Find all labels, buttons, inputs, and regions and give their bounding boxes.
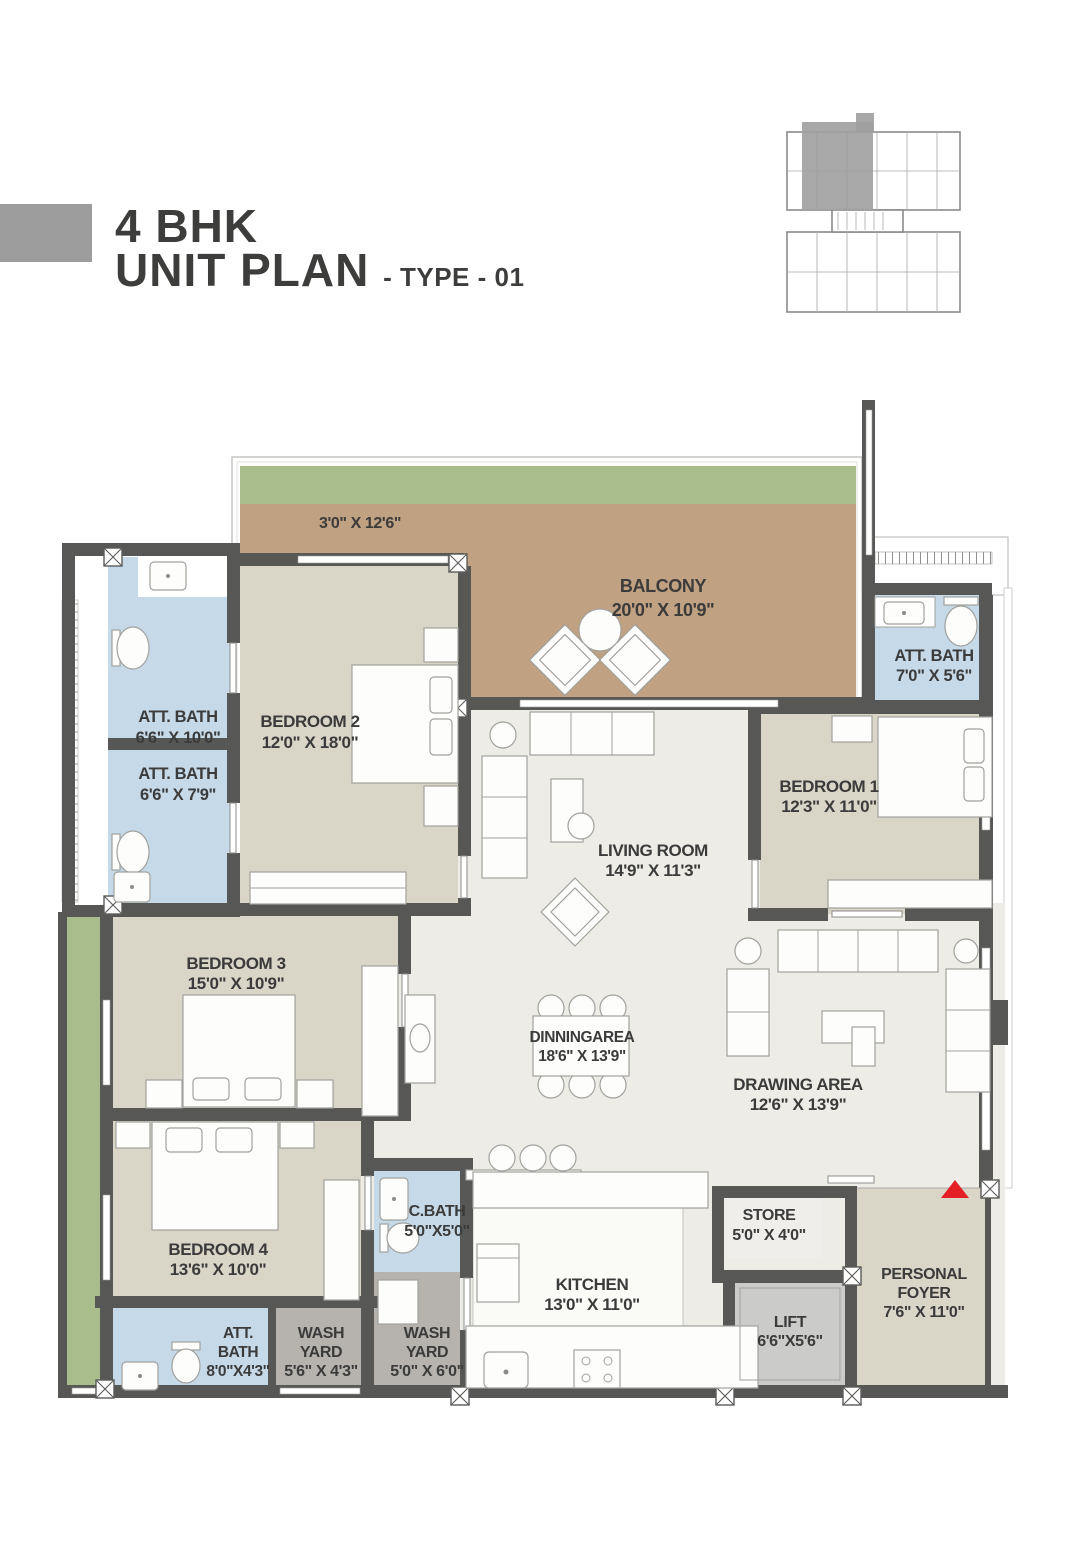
key-plan-highlight-tab [856,113,874,132]
basin [410,1024,430,1052]
toilet [117,831,149,873]
room-label-balcony-strip: 3'0" X 12'6" [319,515,401,532]
balcony-planter [240,466,856,504]
coffee-table-round [568,813,594,839]
kitchen-counter-top [473,1172,708,1208]
key-plan-core [832,210,903,232]
toilet [172,1349,200,1383]
room-label-kitchen: KITCHEN13'0" X 11'0" [544,1275,640,1314]
toilet [117,627,149,669]
pillow [430,719,452,755]
key-plan [787,113,960,312]
nightstand [424,628,458,662]
pillow [193,1078,229,1100]
wardrobe [362,966,398,1116]
room-label-drawing-area: DRAWING AREA12'6" X 13'9" [733,1075,863,1114]
pillow [964,729,984,763]
room-label-bedroom-1: BEDROOM 112'3" X 11'0" [779,777,878,816]
drawing-side-sofa [946,969,990,1092]
wardrobe [324,1180,359,1300]
right-ledge [1004,588,1012,1188]
room-label-bedroom-3: BEDROOM 315'0" X 10'9" [186,954,285,993]
drawing-table-stem [852,1027,875,1066]
side-planter [67,912,102,1390]
bar-stool [520,1145,546,1171]
nightstand [116,1122,150,1148]
living-sofa [530,712,654,755]
side-table [735,938,761,964]
room-label-bedroom-4: BEDROOM 413'6" X 10'0" [168,1240,268,1279]
deck-hatch-strip [875,552,992,564]
bar-stool [489,1145,515,1171]
key-plan-highlighted-unit [802,122,873,210]
side-table [490,722,516,748]
console-shelf [828,1176,874,1183]
nightstand [146,1080,182,1108]
toilet-tank [944,597,978,605]
nightstand [832,716,872,742]
stove [574,1350,620,1388]
living-side-sofa [482,756,527,878]
pillow [430,677,452,713]
nightstand [280,1122,314,1148]
washing-machine [378,1280,418,1324]
toilet [945,606,977,646]
nightstand [297,1080,333,1108]
bar-stool [550,1145,576,1171]
pillow [245,1078,281,1100]
nightstand [424,786,458,826]
room-label-living-room: LIVING ROOM14'9" X 11'3" [598,841,708,880]
dining-table [533,1016,629,1076]
floor-plan-canvas: 3'0" X 12'6"BALCONY20'0" X 10'9"ATT. BAT… [0,0,1080,1548]
dresser [828,880,992,908]
pillow [216,1128,252,1152]
side-table [954,939,978,963]
pillow [964,767,984,801]
pillow [166,1128,202,1152]
refrigerator [477,1244,519,1302]
